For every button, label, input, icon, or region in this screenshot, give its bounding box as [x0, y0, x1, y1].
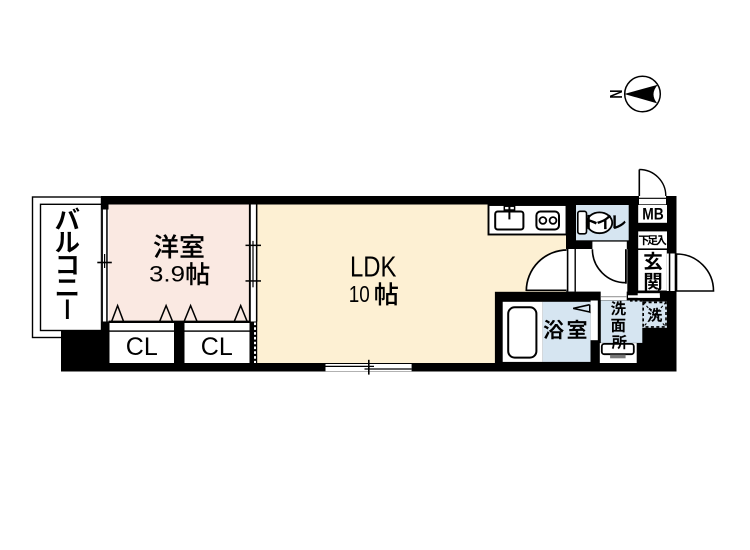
svg-text:3.9: 3.9 [149, 262, 185, 287]
svg-text:LDK: LDK [350, 251, 397, 283]
svg-text:MB: MB [642, 205, 664, 224]
svg-text:CL: CL [201, 333, 233, 361]
svg-text:10: 10 [349, 281, 370, 307]
svg-text:N: N [605, 89, 625, 98]
svg-text:CL: CL [126, 333, 158, 361]
